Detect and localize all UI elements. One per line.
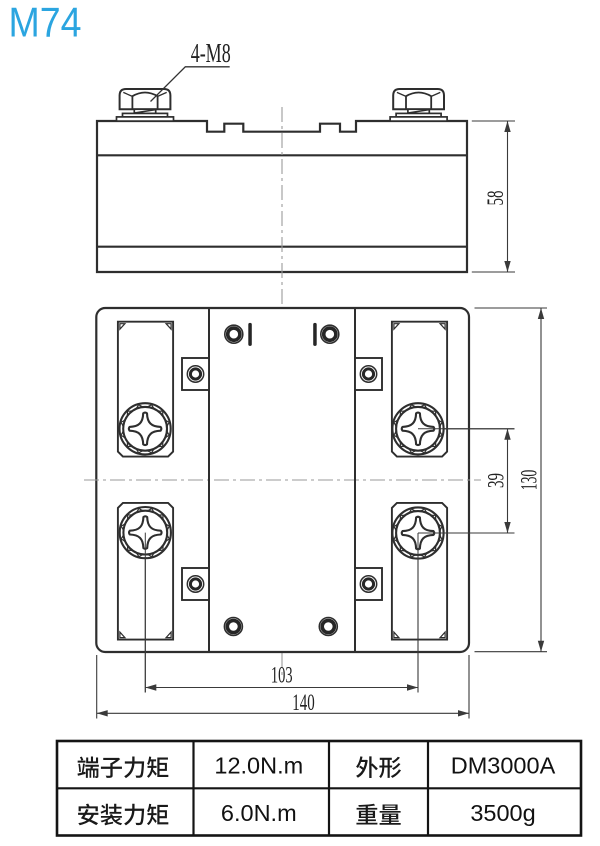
svg-text:3500g: 3500g xyxy=(470,800,535,826)
svg-text:12.0N.m: 12.0N.m xyxy=(214,753,303,779)
svg-text:140: 140 xyxy=(292,690,314,715)
svg-text:DM3000A: DM3000A xyxy=(451,753,556,779)
svg-text:39: 39 xyxy=(483,473,508,488)
svg-text:4-M8: 4-M8 xyxy=(191,38,231,68)
svg-text:103: 103 xyxy=(271,663,293,688)
svg-text:M74: M74 xyxy=(9,0,82,45)
svg-text:6.0N.m: 6.0N.m xyxy=(221,800,297,826)
svg-text:130: 130 xyxy=(516,470,541,491)
svg-text:58: 58 xyxy=(483,191,508,206)
